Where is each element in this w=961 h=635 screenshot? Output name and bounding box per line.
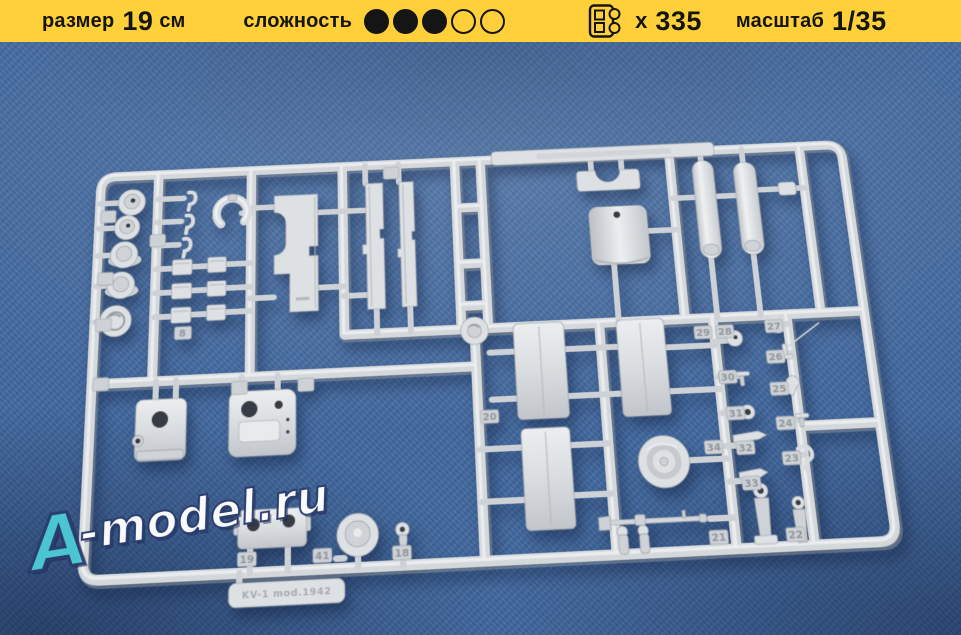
size-value: 19 bbox=[122, 6, 153, 37]
sprue-name-tab: KV-1 mod.1942 bbox=[228, 578, 345, 608]
parts-count-group: x 335 bbox=[587, 3, 702, 39]
svg-text:27: 27 bbox=[767, 321, 782, 333]
part-strips bbox=[362, 182, 418, 310]
difficulty-dot bbox=[422, 9, 447, 34]
difficulty-dot bbox=[480, 9, 505, 34]
svg-text:30: 30 bbox=[720, 372, 735, 384]
size-unit: см bbox=[159, 10, 185, 33]
difficulty-label: сложность bbox=[243, 10, 352, 33]
svg-text:18: 18 bbox=[395, 547, 410, 560]
part-eyelet bbox=[395, 522, 409, 546]
svg-text:28: 28 bbox=[718, 326, 733, 338]
part-curved-shield bbox=[588, 205, 651, 265]
parts-count-prefix: x bbox=[635, 8, 647, 34]
svg-text:22: 22 bbox=[788, 529, 804, 542]
svg-text:41: 41 bbox=[315, 550, 330, 563]
sprue-svg: 8 19 41 18 20 21 22 23 24 25 26 27 28 29… bbox=[69, 134, 914, 620]
part-saddle bbox=[576, 169, 641, 192]
difficulty-dot bbox=[393, 9, 418, 34]
svg-text:29: 29 bbox=[696, 327, 711, 339]
part-hooks bbox=[183, 192, 195, 257]
svg-text:20: 20 bbox=[482, 411, 497, 423]
scale-label: масштаб bbox=[736, 10, 824, 33]
size-label: размер bbox=[42, 10, 114, 33]
svg-text:23: 23 bbox=[784, 453, 800, 465]
product-card: размер 19 см сложность x 335 масштаб 1/3… bbox=[0, 0, 961, 635]
scale-group: масштаб 1/35 bbox=[736, 6, 887, 37]
info-header: размер 19 см сложность x 335 масштаб 1/3… bbox=[0, 0, 961, 42]
part-road-wheel bbox=[636, 434, 692, 489]
svg-text:31: 31 bbox=[728, 408, 744, 420]
svg-text:26: 26 bbox=[768, 352, 783, 364]
difficulty-group: сложность bbox=[243, 9, 509, 34]
svg-text:32: 32 bbox=[738, 442, 753, 454]
part-mantlet-mounts bbox=[131, 389, 296, 462]
part-bracket bbox=[778, 182, 797, 196]
svg-text:21: 21 bbox=[711, 532, 727, 545]
sprue-frame-photo: 8 19 41 18 20 21 22 23 24 25 26 27 28 29… bbox=[69, 134, 914, 620]
product-photo: 8 19 41 18 20 21 22 23 24 25 26 27 28 29… bbox=[0, 42, 961, 635]
part-gun-mount-block bbox=[233, 507, 310, 549]
part-tubes bbox=[691, 158, 765, 258]
svg-text:19: 19 bbox=[239, 554, 254, 567]
part-horseshoe-ring bbox=[216, 194, 248, 225]
size-group: размер 19 см bbox=[42, 6, 185, 37]
difficulty-dot bbox=[451, 9, 476, 34]
sprue-icon bbox=[587, 3, 625, 39]
difficulty-dots bbox=[364, 9, 509, 34]
svg-text:25: 25 bbox=[772, 384, 788, 396]
svg-text:8: 8 bbox=[179, 328, 186, 339]
scale-value: 1/35 bbox=[832, 6, 887, 37]
svg-text:33: 33 bbox=[744, 478, 760, 491]
part-notched-plate bbox=[274, 194, 318, 313]
svg-text:24: 24 bbox=[778, 418, 794, 430]
svg-text:34: 34 bbox=[706, 442, 722, 454]
difficulty-dot bbox=[364, 9, 389, 34]
part-round-hatch bbox=[337, 512, 379, 557]
parts-count-value: 335 bbox=[655, 6, 702, 37]
